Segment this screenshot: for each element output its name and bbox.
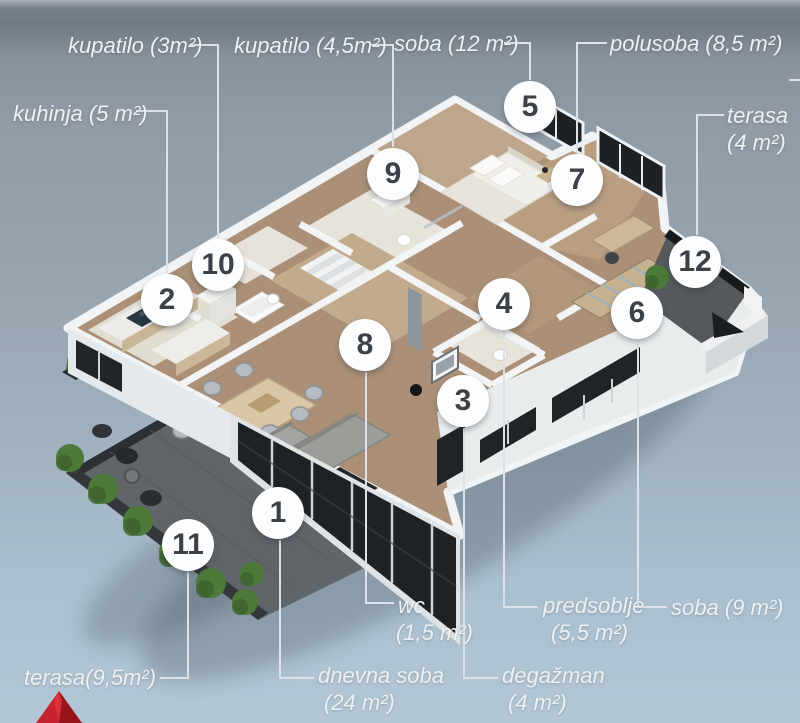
room-label-text: degažman xyxy=(502,663,605,688)
room-label-kupatilo-3: kupatilo (3m²) xyxy=(68,32,202,59)
room-label-terasa-4: terasa(4 m²) xyxy=(727,102,788,156)
room-label-terasa-95: terasa(9,5m²) xyxy=(24,664,156,691)
room-marker-5: 5 xyxy=(504,81,556,133)
room-label-text: (4 m²) xyxy=(508,689,605,716)
floor-plan-page: kupatilo (3m²)kupatilo (4,5m²)soba (12 m… xyxy=(0,0,800,723)
room-label-text: polusoba (8,5 m²) xyxy=(610,31,782,56)
room-marker-12: 12 xyxy=(669,236,721,288)
room-label-text: kuhinja (5 m²) xyxy=(13,101,147,126)
leader-line-10 xyxy=(190,45,218,238)
room-label-soba-12: soba (12 m²) xyxy=(394,30,519,57)
room-label-text: dnevna soba xyxy=(318,663,444,688)
room-label-text: (1,5 m²) xyxy=(396,619,473,646)
compass-arrow-icon xyxy=(36,691,82,723)
room-marker-2: 2 xyxy=(141,274,193,326)
room-label-text: soba (12 m²) xyxy=(394,31,519,56)
room-marker-4: 4 xyxy=(478,278,530,330)
room-label-polusoba-85: polusoba (8,5 m²) xyxy=(610,30,782,57)
room-label-text: predsoblje xyxy=(543,593,645,618)
room-label-text: soba (9 m²) xyxy=(671,595,783,620)
leader-line-9 xyxy=(370,45,393,147)
room-label-dnevna-soba: dnevna soba(24 m²) xyxy=(318,662,444,716)
room-label-text: kupatilo (4,5m²) xyxy=(234,33,387,58)
room-label-kuhinja-5: kuhinja (5 m²) xyxy=(13,100,147,127)
room-marker-3: 3 xyxy=(437,375,489,427)
room-label-text: (4 m²) xyxy=(727,129,788,156)
room-label-text: (5,5 m²) xyxy=(551,619,645,646)
room-label-text: terasa(9,5m²) xyxy=(24,665,156,690)
room-label-text: wc xyxy=(398,593,425,618)
room-label-text: kupatilo (3m²) xyxy=(68,33,202,58)
leader-line-2 xyxy=(136,111,167,273)
room-label-text: terasa xyxy=(727,103,788,128)
room-marker-8: 8 xyxy=(339,319,391,371)
room-marker-11: 11 xyxy=(162,519,214,571)
room-marker-6: 6 xyxy=(611,287,663,339)
room-marker-1: 1 xyxy=(252,487,304,539)
room-marker-9: 9 xyxy=(367,148,419,200)
room-label-degazman: degažman(4 m²) xyxy=(502,662,605,716)
hall-dark-panel xyxy=(408,287,422,352)
room-label-kupatilo-45: kupatilo (4,5m²) xyxy=(234,32,387,59)
room-label-soba-9: soba (9 m²) xyxy=(671,594,783,621)
room-marker-10: 10 xyxy=(192,239,244,291)
room-marker-7: 7 xyxy=(551,154,603,206)
floor-lamp xyxy=(410,384,422,396)
room-label-wc: wc(1,5 m²) xyxy=(398,592,473,646)
leader-line-12 xyxy=(697,115,724,235)
room-label-text: (24 m²) xyxy=(324,689,444,716)
room-label-predsoblje: predsoblje(5,5 m²) xyxy=(543,592,645,646)
